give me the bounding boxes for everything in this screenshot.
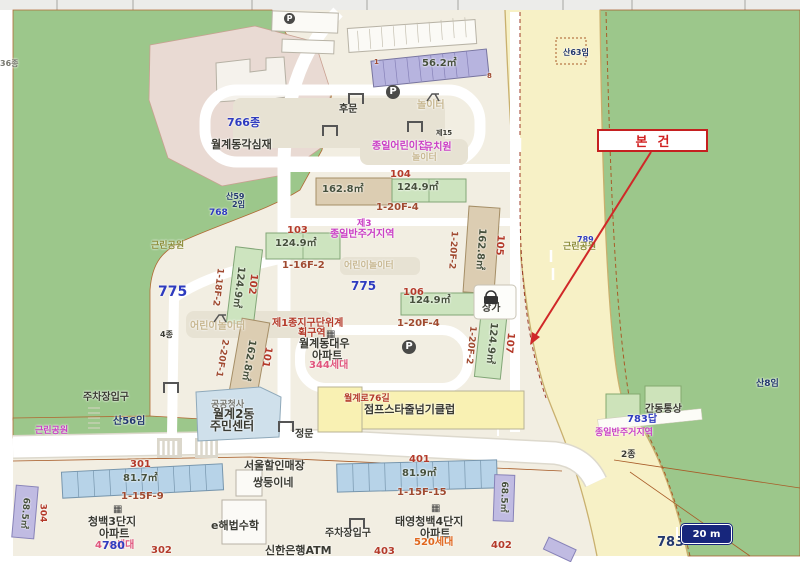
scale-bar: 20 m — [681, 524, 732, 544]
building-105 — [463, 206, 500, 294]
building-401 — [337, 460, 498, 492]
building-club-annex — [318, 387, 362, 432]
field-parcel — [645, 386, 681, 412]
map-canvas[interactable] — [0, 0, 800, 562]
building-68-right — [493, 475, 515, 522]
subject-annotation-box: 본건 — [597, 129, 708, 152]
shop-pad — [474, 285, 516, 319]
building-jump-club — [362, 391, 524, 429]
building-math-academy — [222, 500, 266, 544]
building-162-top — [316, 178, 392, 205]
map-screenshot: 36종766종월계동각심재후문산592임768근린공원775775어린이놀이터어… — [0, 0, 800, 562]
building-68-left — [12, 485, 38, 539]
building-106 — [401, 293, 477, 315]
scale-tick — [676, 527, 678, 539]
building-community-center — [196, 387, 281, 441]
